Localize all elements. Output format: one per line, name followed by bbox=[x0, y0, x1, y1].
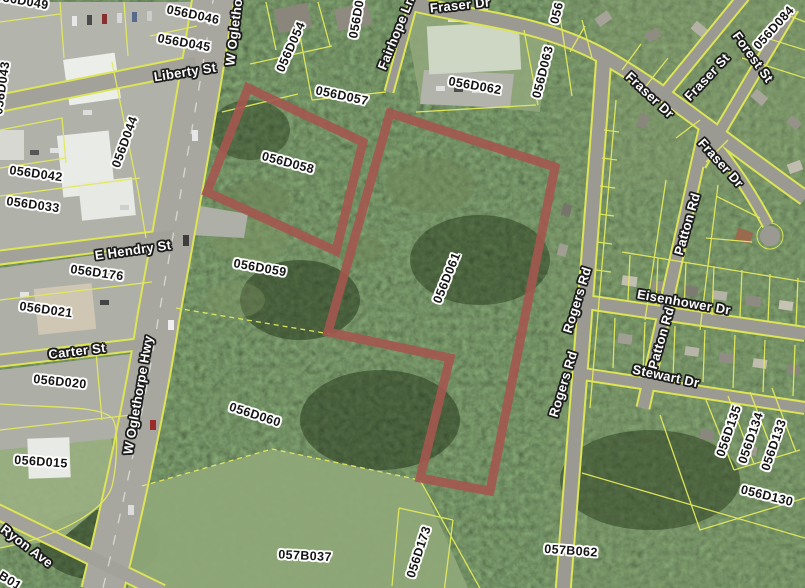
aerial-basemap bbox=[0, 0, 805, 588]
map-canvas[interactable]: 056D049056D046056D045056D044056D043056D0… bbox=[0, 0, 805, 588]
